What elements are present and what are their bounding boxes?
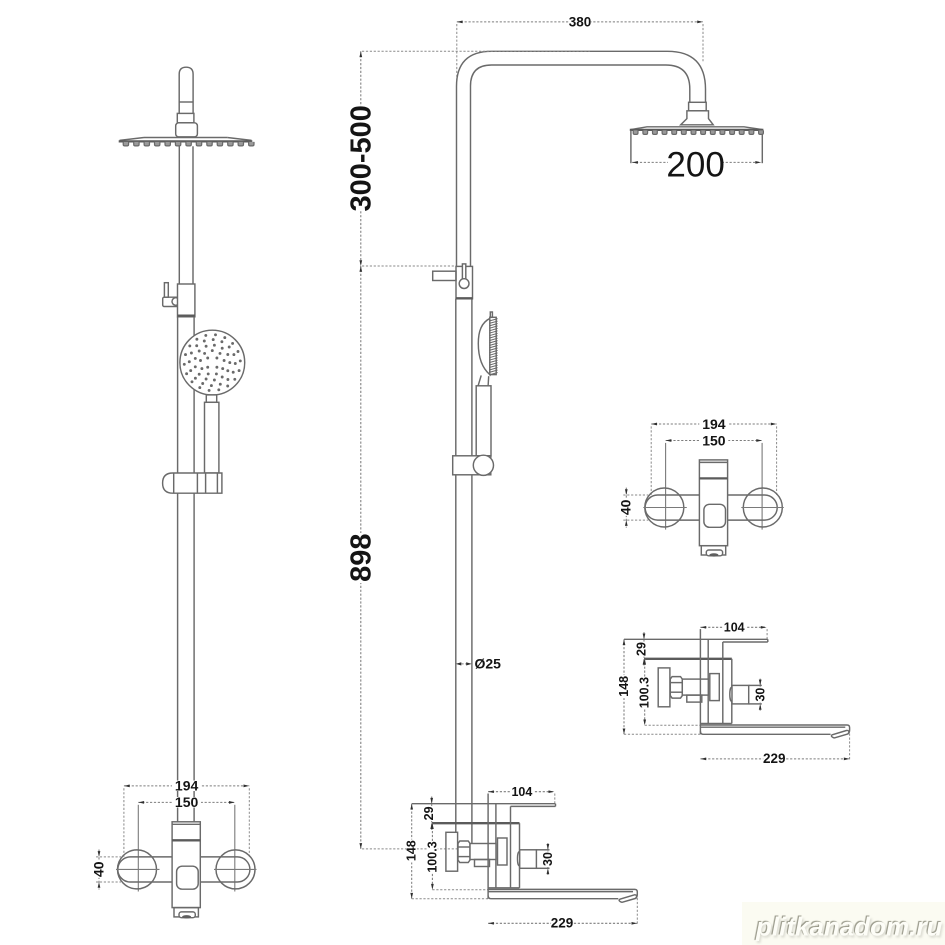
svg-text:898: 898 — [346, 534, 378, 582]
svg-text:229: 229 — [763, 751, 786, 766]
svg-text:104: 104 — [724, 620, 745, 634]
svg-text:148: 148 — [617, 676, 631, 697]
svg-text:29: 29 — [635, 642, 649, 656]
svg-text:200: 200 — [666, 146, 724, 185]
svg-text:148: 148 — [405, 840, 419, 861]
svg-text:40: 40 — [90, 861, 106, 877]
svg-text:194: 194 — [702, 416, 726, 432]
svg-text:30: 30 — [541, 852, 555, 866]
svg-text:plitkanadom.ru: plitkanadom.ru — [755, 912, 942, 942]
svg-text:194: 194 — [175, 778, 199, 794]
svg-text:29: 29 — [422, 806, 436, 820]
svg-text:40: 40 — [618, 499, 634, 515]
svg-text:300-500: 300-500 — [346, 105, 378, 211]
svg-text:100.3: 100.3 — [425, 841, 439, 872]
svg-text:150: 150 — [702, 432, 726, 448]
svg-text:150: 150 — [175, 794, 199, 810]
svg-text:380: 380 — [569, 14, 592, 29]
svg-text:30: 30 — [753, 688, 767, 702]
svg-text:104: 104 — [511, 785, 532, 799]
svg-text:229: 229 — [551, 916, 574, 931]
svg-text:100.3: 100.3 — [638, 677, 652, 708]
svg-text:Ø25: Ø25 — [475, 656, 502, 672]
